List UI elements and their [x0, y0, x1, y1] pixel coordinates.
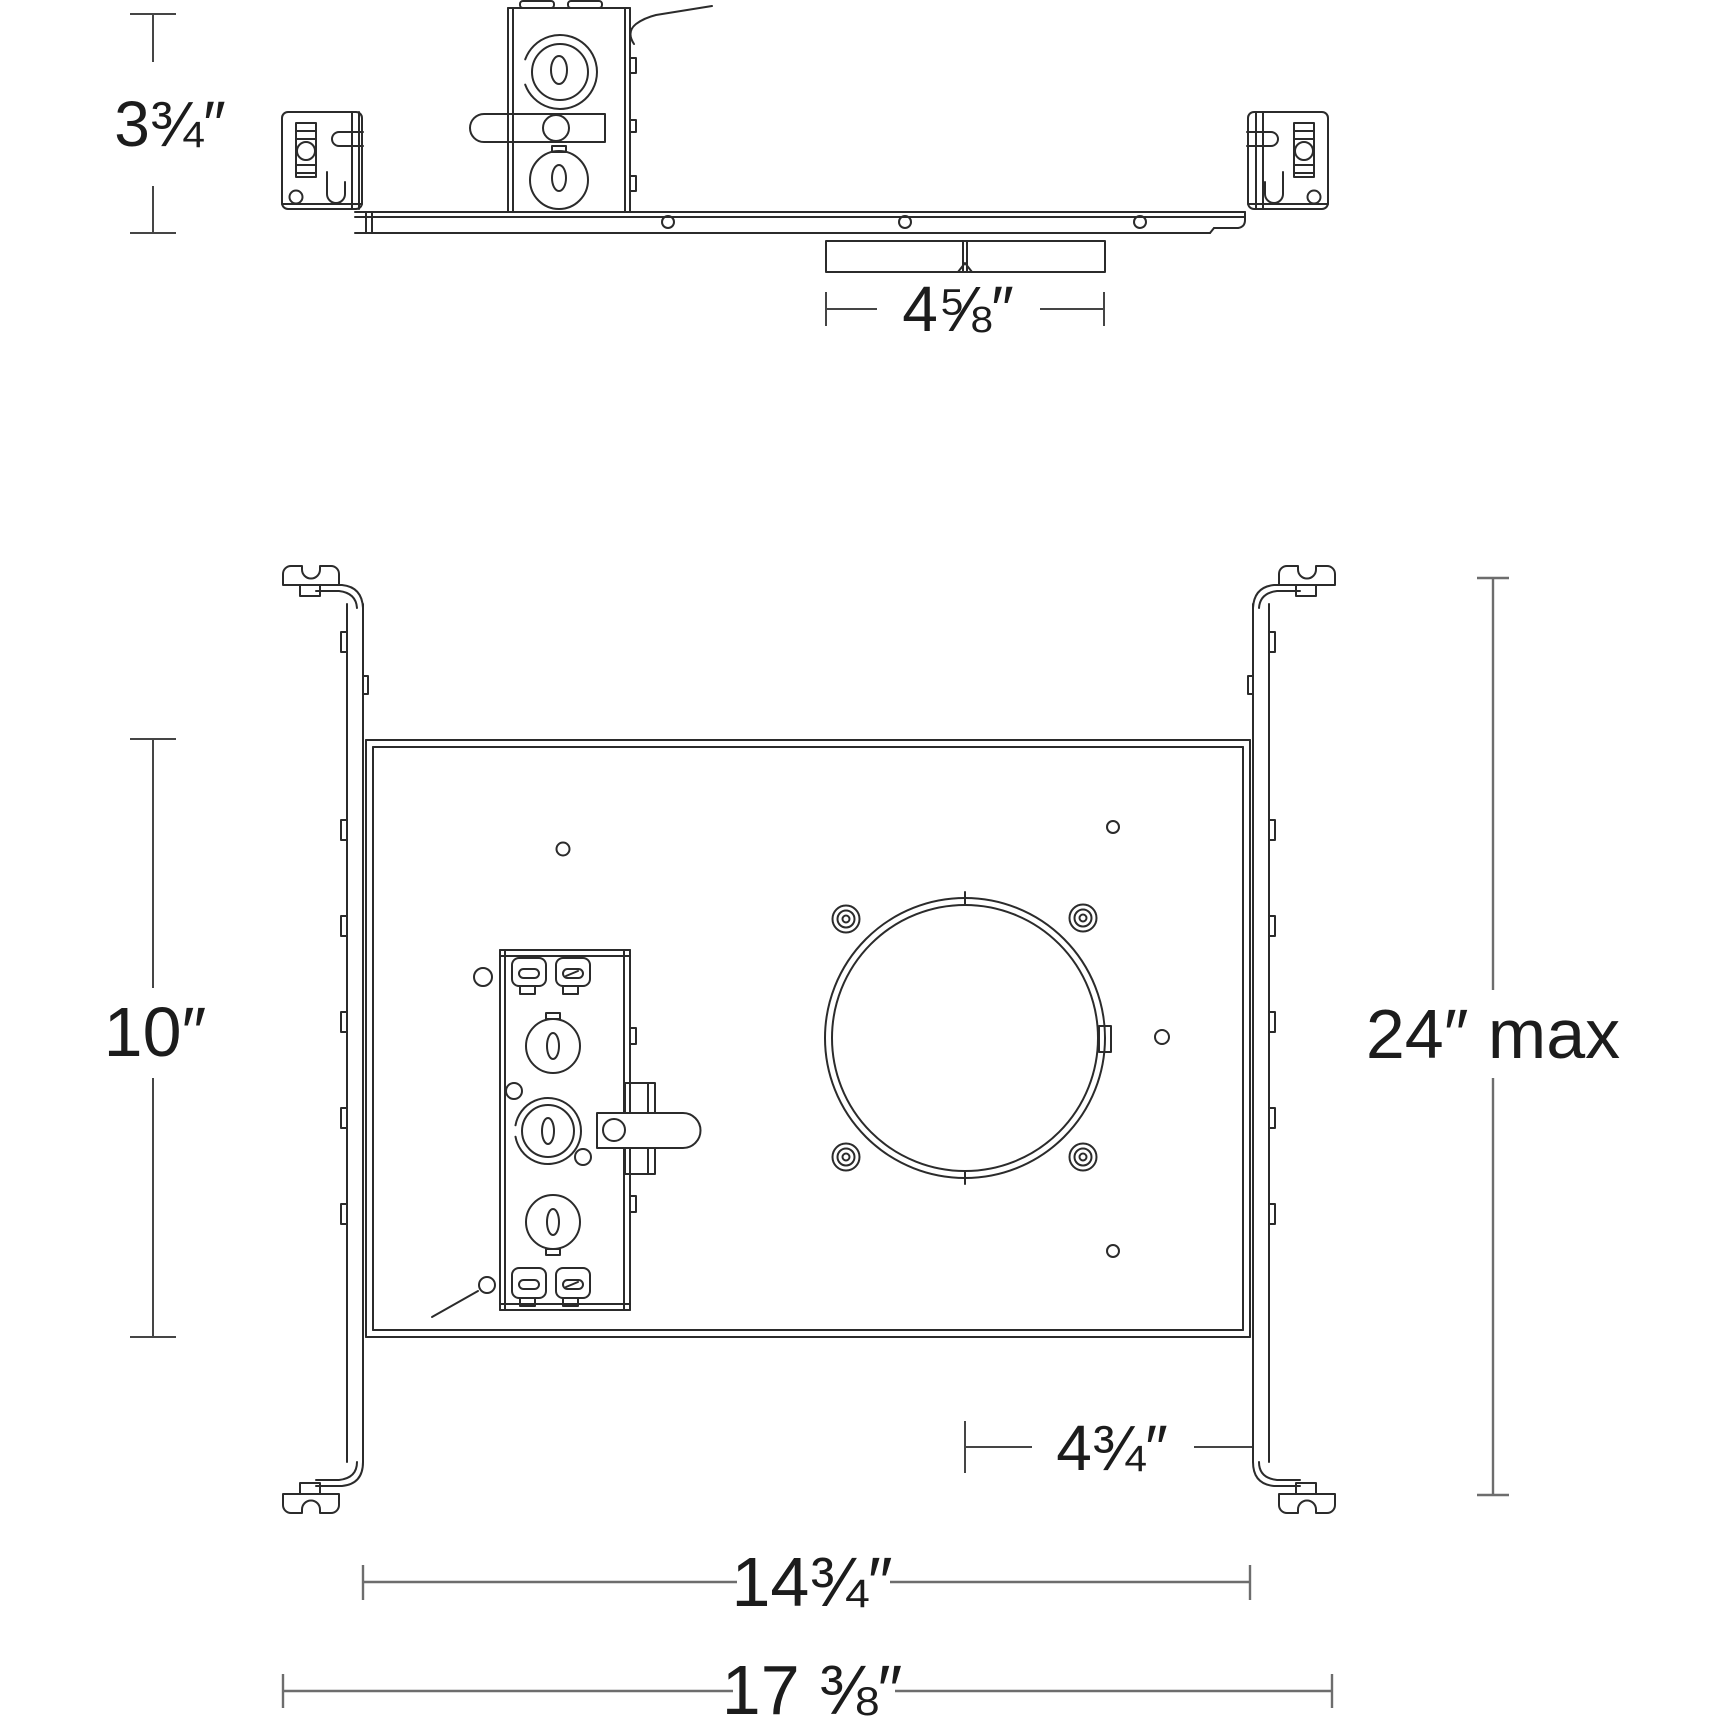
dim-label-driver-width: 4⅝″ [902, 273, 1014, 345]
side-elevation-view: 3¾″ [114, 1, 1328, 345]
aperture-grommets [833, 905, 1097, 1171]
fixture-dimension-drawing: 3¾″ [0, 0, 1728, 1728]
nail-tab-bottom-right [1279, 1494, 1335, 1513]
junction-box [500, 950, 701, 1310]
dim-label-housing-height: 3¾″ [114, 88, 226, 160]
hanger-rail-side [355, 212, 1245, 233]
wire-lead [432, 1291, 478, 1317]
knockout-ring [525, 35, 597, 109]
cable-clamp-bar [470, 114, 605, 142]
plan-view: 10″ 24″ max 4¾″ 14¾″ [104, 566, 1621, 1728]
center-knockout-ring [516, 1098, 582, 1164]
nail-tab-top-left [283, 566, 339, 585]
aperture-ring [825, 892, 1111, 1184]
nailer-bracket-left-side [282, 112, 363, 209]
dim-label-plate-width: 14¾″ [731, 1543, 892, 1621]
dim-label-hanger-bar-max: 24″ max [1366, 995, 1620, 1073]
ground-wire [630, 6, 712, 44]
junction-box-side [470, 1, 712, 212]
driver-housing-side [826, 241, 1105, 272]
dim-label-overall-width: 17 ⅜″ [722, 1651, 902, 1728]
hanger-bar-right [1248, 566, 1335, 1513]
hanger-bar-left [283, 566, 368, 1513]
dim-label-plate-height: 10″ [104, 993, 207, 1071]
nail-tab-bottom-left [283, 1494, 339, 1513]
mounting-plate [366, 740, 1250, 1337]
nailer-bracket-right-side [1247, 112, 1328, 209]
nail-tab-top-right [1279, 566, 1335, 585]
dim-label-hole-center-offset: 4¾″ [1056, 1412, 1168, 1484]
